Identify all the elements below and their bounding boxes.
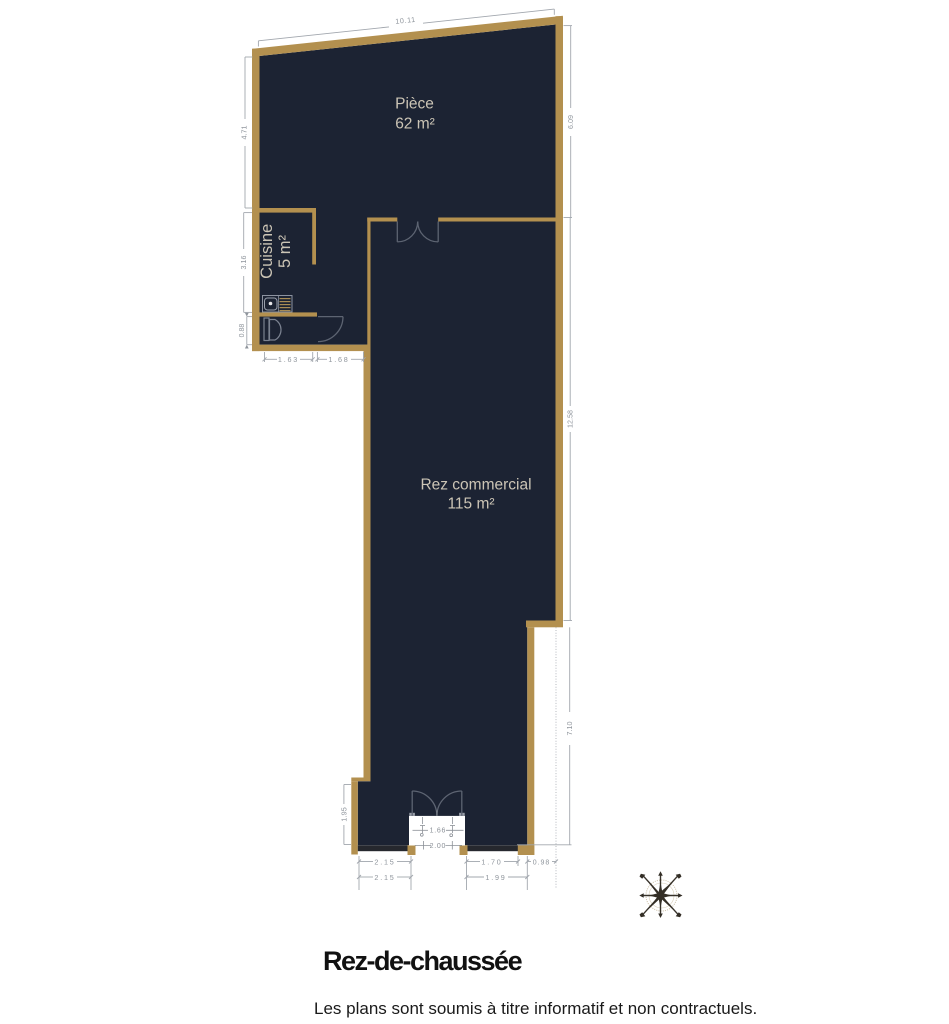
svg-text:3.16: 3.16 bbox=[239, 256, 248, 270]
svg-text:7.10: 7.10 bbox=[565, 722, 574, 736]
svg-text:Cuisine: Cuisine bbox=[258, 224, 276, 279]
svg-text:Les plans sont soumis à titre: Les plans sont soumis à titre informatif… bbox=[314, 999, 757, 1018]
svg-text:2.15: 2.15 bbox=[374, 873, 395, 882]
svg-text:Rez-de-chaussée: Rez-de-chaussée bbox=[323, 946, 523, 976]
svg-text:12.58: 12.58 bbox=[566, 410, 575, 428]
svg-text:1.99: 1.99 bbox=[485, 873, 506, 882]
svg-text:1.66: 1.66 bbox=[430, 827, 446, 834]
svg-text:1.95: 1.95 bbox=[339, 807, 348, 822]
svg-text:62 m²: 62 m² bbox=[395, 115, 435, 132]
svg-text:0.98: 0.98 bbox=[533, 859, 551, 866]
svg-text:1.63: 1.63 bbox=[278, 355, 299, 364]
svg-text:2.15: 2.15 bbox=[374, 857, 395, 866]
svg-text:115 m²: 115 m² bbox=[447, 496, 494, 513]
svg-text:Pièce: Pièce bbox=[395, 96, 434, 113]
svg-text:2.00: 2.00 bbox=[430, 843, 446, 850]
svg-text:4.71: 4.71 bbox=[240, 126, 249, 140]
svg-text:1.70: 1.70 bbox=[481, 857, 502, 866]
svg-text:6.09: 6.09 bbox=[566, 115, 575, 129]
svg-text:1.68: 1.68 bbox=[328, 355, 349, 364]
svg-text:0.88: 0.88 bbox=[239, 324, 246, 338]
svg-text:Rez commercial: Rez commercial bbox=[420, 477, 531, 494]
svg-text:5 m²: 5 m² bbox=[276, 234, 294, 268]
